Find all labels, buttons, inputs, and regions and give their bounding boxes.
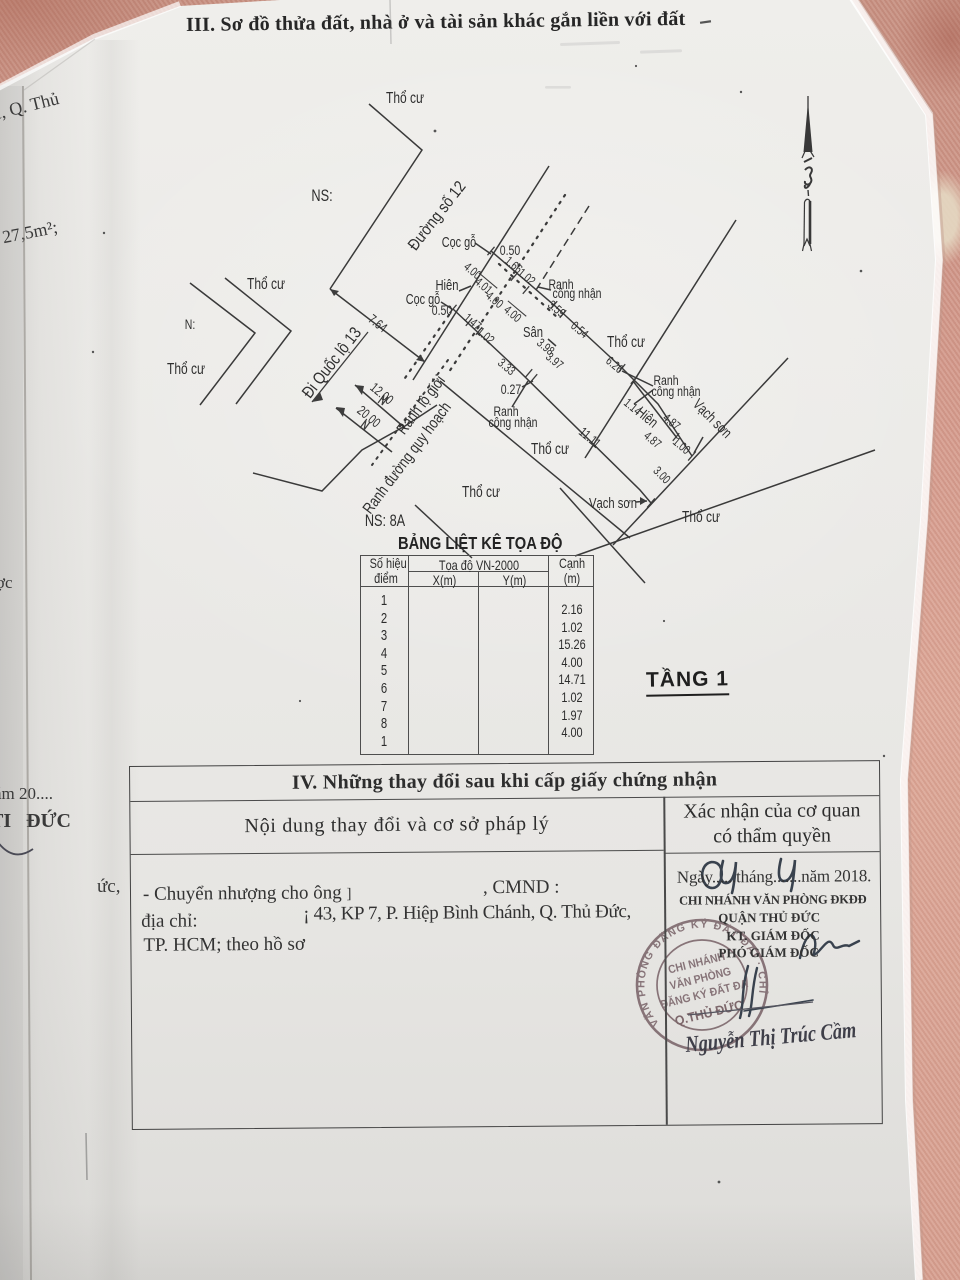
svg-text:11.11: 11.11 xyxy=(576,424,605,452)
svg-text:Thổ cư: Thổ cư xyxy=(167,359,205,377)
svg-text:Sân: Sân xyxy=(523,323,543,340)
svg-text:3.59: 3.59 xyxy=(545,298,568,320)
svg-text:Vạch sơn: Vạch sơn xyxy=(690,395,736,441)
svg-text:3.00: 3.00 xyxy=(650,464,672,486)
svg-text:Thổ cư: Thổ cư xyxy=(462,482,500,500)
svg-text:Thổ cư: Thổ cư xyxy=(607,332,645,350)
svg-text:1.00: 1.00 xyxy=(670,435,693,457)
svg-text:N:: N: xyxy=(185,317,196,333)
svg-text:Thổ cư: Thổ cư xyxy=(247,274,285,292)
svg-text:Đi Quốc lộ 13: Đi Quốc lộ 13 xyxy=(299,324,366,402)
svg-text:Cọc gỗ: Cọc gỗ xyxy=(442,233,476,250)
svg-text:Thổ cư: Thổ cư xyxy=(682,507,720,525)
svg-text:4.87: 4.87 xyxy=(660,411,683,433)
svg-text:Thổ cư: Thổ cư xyxy=(386,88,424,106)
svg-text:Hiên: Hiên xyxy=(435,276,458,293)
svg-text:0.27: 0.27 xyxy=(501,382,522,398)
svg-text:NS:: NS: xyxy=(311,186,332,205)
svg-text:công nhận: công nhận xyxy=(489,415,538,431)
svg-text:Thổ cư: Thổ cư xyxy=(531,439,569,457)
svg-text:3.33: 3.33 xyxy=(495,356,518,378)
svg-text:6.26: 6.26 xyxy=(603,354,626,376)
svg-text:0.50: 0.50 xyxy=(432,303,453,319)
svg-text:công nhận: công nhận xyxy=(652,384,701,400)
svg-text:4.00: 4.00 xyxy=(501,303,524,325)
svg-text:0.54: 0.54 xyxy=(568,319,591,341)
svg-text:công nhận: công nhận xyxy=(553,286,602,302)
svg-text:Vạch sơn: Vạch sơn xyxy=(589,494,637,511)
svg-text:12.00: 12.00 xyxy=(367,379,397,408)
svg-text:4.87: 4.87 xyxy=(641,429,664,451)
